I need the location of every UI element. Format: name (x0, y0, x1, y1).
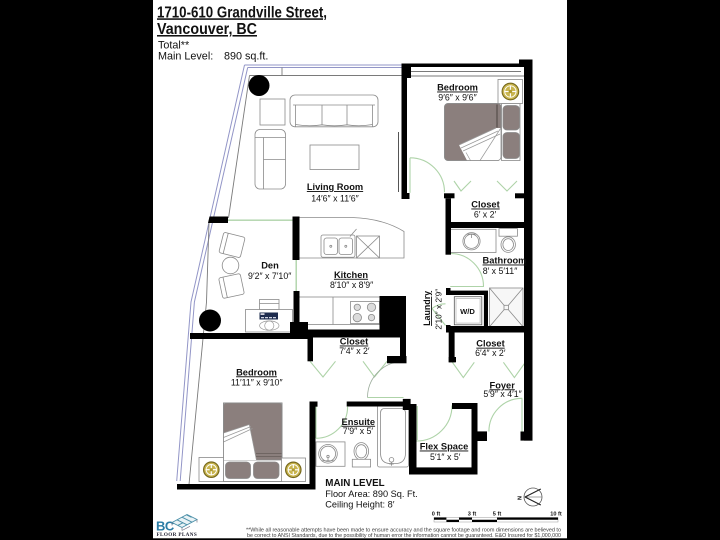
svg-text:Den: Den (261, 261, 279, 271)
svg-text:Main Level:: Main Level: (158, 50, 213, 62)
svg-text:10 ft: 10 ft (550, 512, 562, 518)
svg-text:Closet: Closet (476, 339, 504, 349)
svg-text:2′10″ x 2′9″: 2′10″ x 2′9″ (434, 289, 444, 330)
svg-text:Ceiling Height: 8′: Ceiling Height: 8′ (325, 500, 394, 510)
svg-text:MAIN LEVEL: MAIN LEVEL (325, 478, 384, 489)
svg-text:Bathroom: Bathroom (483, 256, 527, 266)
svg-text:Bedroom: Bedroom (437, 83, 478, 93)
svg-text:Bedroom: Bedroom (236, 367, 277, 377)
svg-text:9′6″ x 9′6″: 9′6″ x 9′6″ (438, 93, 476, 103)
svg-text:8′10″ x 8′9″: 8′10″ x 8′9″ (330, 280, 373, 290)
svg-text:Living Room: Living Room (307, 182, 363, 192)
svg-text:6′4″ x 2′: 6′4″ x 2′ (475, 348, 506, 358)
svg-text:5′9″ x 4′1″: 5′9″ x 4′1″ (483, 389, 521, 399)
svg-text:Flex Space: Flex Space (420, 442, 469, 452)
svg-text:14′6″ x 11′6″: 14′6″ x 11′6″ (311, 194, 359, 204)
svg-text:5 ft: 5 ft (493, 512, 502, 518)
svg-text:FLOOR PLANS: FLOOR PLANS (157, 532, 198, 538)
svg-text:7′4″ x 2′: 7′4″ x 2′ (339, 346, 370, 356)
svg-text:11′11″ x 9′10″: 11′11″ x 9′10″ (231, 377, 283, 387)
svg-text:Vancouver, BC: Vancouver, BC (157, 21, 257, 38)
svg-text:8′ x 5′11″: 8′ x 5′11″ (483, 266, 518, 276)
svg-text:N: N (518, 496, 524, 500)
svg-text:3 ft: 3 ft (468, 512, 477, 518)
svg-text:7′9″ x 5′: 7′9″ x 5′ (343, 426, 374, 436)
svg-text:6′ x 2′: 6′ x 2′ (474, 209, 497, 219)
svg-text:Laundry: Laundry (422, 291, 432, 326)
svg-text:Kitchen: Kitchen (334, 270, 368, 280)
svg-text:9′2″ x 7′10″: 9′2″ x 7′10″ (248, 271, 291, 281)
svg-text:Floor Area: 890 Sq. Ft.: Floor Area: 890 Sq. Ft. (325, 489, 417, 499)
svg-text:5′1″ x 5′: 5′1″ x 5′ (430, 452, 461, 462)
svg-text:890 sq.ft.: 890 sq.ft. (224, 50, 268, 62)
svg-text:W/D: W/D (460, 307, 475, 316)
svg-text:0 ft: 0 ft (432, 512, 441, 518)
svg-text:1710-610 Grandville Street,: 1710-610 Grandville Street, (157, 4, 327, 21)
svg-text:Closet: Closet (471, 200, 499, 210)
